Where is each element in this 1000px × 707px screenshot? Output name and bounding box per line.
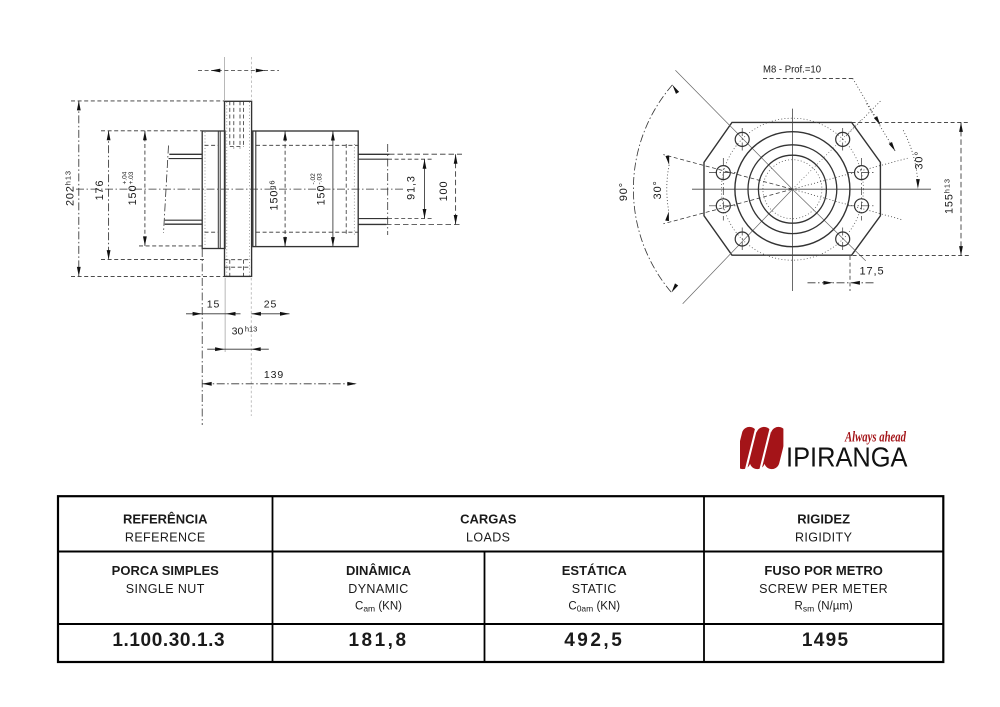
svg-text:SCREW PER METER: SCREW PER METER: [759, 582, 888, 596]
svg-text:91,3: 91,3: [406, 175, 418, 200]
svg-text:100: 100: [438, 181, 450, 202]
svg-text:25: 25: [264, 299, 277, 311]
svg-text:M8 - Prof.=10: M8 - Prof.=10: [763, 65, 821, 76]
svg-text:RIGIDITY: RIGIDITY: [795, 530, 853, 544]
svg-text:DINÂMICA: DINÂMICA: [346, 563, 412, 578]
svg-text:90°: 90°: [618, 182, 630, 201]
svg-text:30°: 30°: [914, 150, 926, 169]
svg-text:17,5: 17,5: [859, 266, 884, 278]
svg-text:492,5: 492,5: [564, 630, 624, 651]
svg-text:1.100.30.1.3: 1.100.30.1.3: [112, 630, 225, 651]
svg-text:1495: 1495: [802, 630, 849, 651]
svg-text:150: 150: [127, 185, 139, 206]
svg-text:PORCA SIMPLES: PORCA SIMPLES: [112, 563, 219, 578]
svg-text:139: 139: [264, 369, 284, 381]
svg-text:Cam (KN): Cam (KN): [355, 601, 402, 614]
svg-text:C0am (KN): C0am (KN): [568, 601, 620, 614]
svg-text:CARGAS: CARGAS: [460, 512, 517, 527]
svg-text:FUSO POR METRO: FUSO POR METRO: [764, 563, 882, 578]
svg-text:IPIRANGA: IPIRANGA: [786, 442, 908, 473]
svg-text:+.03: +.03: [128, 171, 135, 184]
svg-text:SINGLE NUT: SINGLE NUT: [126, 582, 205, 596]
svg-text:RIGIDEZ: RIGIDEZ: [797, 512, 850, 527]
svg-text:176: 176: [94, 180, 106, 201]
svg-text:LOADS: LOADS: [466, 530, 510, 544]
svg-text:15: 15: [207, 299, 220, 311]
svg-text:DYNAMIC: DYNAMIC: [348, 582, 408, 596]
svg-text:REFERENCE: REFERENCE: [125, 530, 206, 544]
svg-text:STATIC: STATIC: [572, 582, 617, 596]
svg-text:181,8: 181,8: [348, 630, 408, 651]
svg-text:-.03: -.03: [317, 173, 324, 185]
svg-text:150: 150: [316, 185, 328, 206]
svg-text:REFERÊNCIA: REFERÊNCIA: [123, 512, 208, 527]
svg-text:30°: 30°: [652, 180, 664, 199]
svg-text:ESTÁTICA: ESTÁTICA: [562, 563, 628, 578]
